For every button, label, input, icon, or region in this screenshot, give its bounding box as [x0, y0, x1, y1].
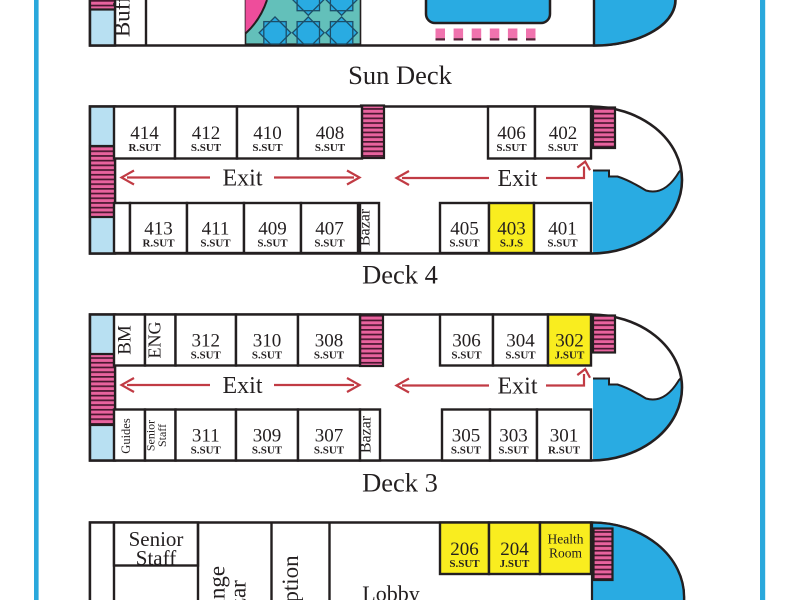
svg-text:Health: Health	[548, 532, 584, 547]
svg-text:311: 311	[192, 426, 220, 447]
svg-text:S.SUT: S.SUT	[191, 445, 222, 457]
svg-text:307: 307	[315, 426, 344, 447]
svg-text:J.SUT: J.SUT	[500, 558, 530, 570]
svg-text:401: 401	[548, 219, 577, 240]
svg-text:303: 303	[499, 426, 528, 447]
svg-text:408: 408	[316, 123, 345, 144]
svg-text:S.SUT: S.SUT	[547, 238, 578, 250]
svg-text:S.SUT: S.SUT	[498, 445, 529, 457]
svg-text:ENG: ENG	[145, 322, 165, 359]
svg-text:304: 304	[506, 331, 535, 352]
svg-text:Reception: Reception	[278, 555, 303, 600]
svg-text:406: 406	[497, 123, 526, 144]
svg-text:Buffet: Buffet	[110, 0, 135, 37]
svg-text:Exit: Exit	[223, 166, 263, 192]
svg-text:R.SUT: R.SUT	[548, 445, 581, 457]
svg-text:Room: Room	[549, 546, 583, 561]
svg-text:405: 405	[450, 219, 479, 240]
svg-text:Deck 3: Deck 3	[362, 468, 438, 498]
svg-text:S.SUT: S.SUT	[191, 350, 222, 362]
svg-text:R.SUT: R.SUT	[142, 238, 175, 250]
svg-text:S.SUT: S.SUT	[314, 350, 345, 362]
svg-text:Bazar: Bazar	[226, 580, 251, 600]
svg-text:402: 402	[549, 123, 578, 144]
svg-text:S.SUT: S.SUT	[505, 350, 536, 362]
svg-text:S.SUT: S.SUT	[451, 445, 482, 457]
svg-text:413: 413	[144, 219, 173, 240]
svg-text:S.SUT: S.SUT	[314, 445, 345, 457]
svg-text:S.SUT: S.SUT	[315, 142, 346, 154]
svg-text:Exit: Exit	[498, 374, 538, 400]
svg-text:S.SUT: S.SUT	[252, 142, 283, 154]
svg-text:S.SUT: S.SUT	[449, 238, 480, 250]
svg-text:S.J.S: S.J.S	[500, 238, 523, 250]
svg-text:S.SUT: S.SUT	[257, 238, 288, 250]
svg-text:310: 310	[253, 331, 282, 352]
svg-text:411: 411	[202, 219, 230, 240]
svg-text:403: 403	[497, 219, 526, 240]
svg-text:Lobby: Lobby	[362, 581, 419, 600]
svg-text:Exit: Exit	[498, 166, 538, 192]
svg-text:206: 206	[450, 539, 479, 560]
svg-text:407: 407	[315, 219, 344, 240]
svg-text:414: 414	[130, 123, 159, 144]
svg-text:308: 308	[315, 331, 344, 352]
svg-text:S.SUT: S.SUT	[191, 142, 222, 154]
svg-text:Staff: Staff	[136, 546, 176, 570]
svg-text:S.SUT: S.SUT	[252, 445, 283, 457]
svg-text:410: 410	[253, 123, 282, 144]
svg-text:BM: BM	[115, 325, 136, 355]
svg-text:Bazar: Bazar	[357, 415, 374, 453]
svg-text:301: 301	[550, 426, 579, 447]
svg-text:S.SUT: S.SUT	[548, 142, 579, 154]
svg-text:Staff: Staff	[155, 424, 169, 447]
svg-text:J.SUT: J.SUT	[555, 350, 585, 362]
svg-text:312: 312	[192, 331, 221, 352]
svg-text:204: 204	[500, 539, 529, 560]
svg-text:409: 409	[258, 219, 287, 240]
svg-text:Sun Deck: Sun Deck	[348, 60, 453, 90]
svg-text:Guides: Guides	[119, 418, 133, 454]
svg-text:309: 309	[253, 426, 282, 447]
svg-text:S.SUT: S.SUT	[451, 350, 482, 362]
svg-text:S.SUT: S.SUT	[252, 350, 283, 362]
svg-text:306: 306	[452, 331, 481, 352]
svg-text:S.SUT: S.SUT	[200, 238, 231, 250]
svg-text:S.SUT: S.SUT	[314, 238, 345, 250]
svg-text:302: 302	[555, 331, 584, 352]
svg-text:Deck 4: Deck 4	[362, 260, 438, 290]
svg-text:305: 305	[452, 426, 481, 447]
svg-text:412: 412	[192, 123, 221, 144]
svg-text:S.SUT: S.SUT	[496, 142, 527, 154]
svg-text:Exit: Exit	[223, 373, 263, 399]
svg-text:S.SUT: S.SUT	[449, 558, 480, 570]
svg-text:R.SUT: R.SUT	[128, 142, 161, 154]
svg-text:Bazar: Bazar	[357, 208, 374, 246]
